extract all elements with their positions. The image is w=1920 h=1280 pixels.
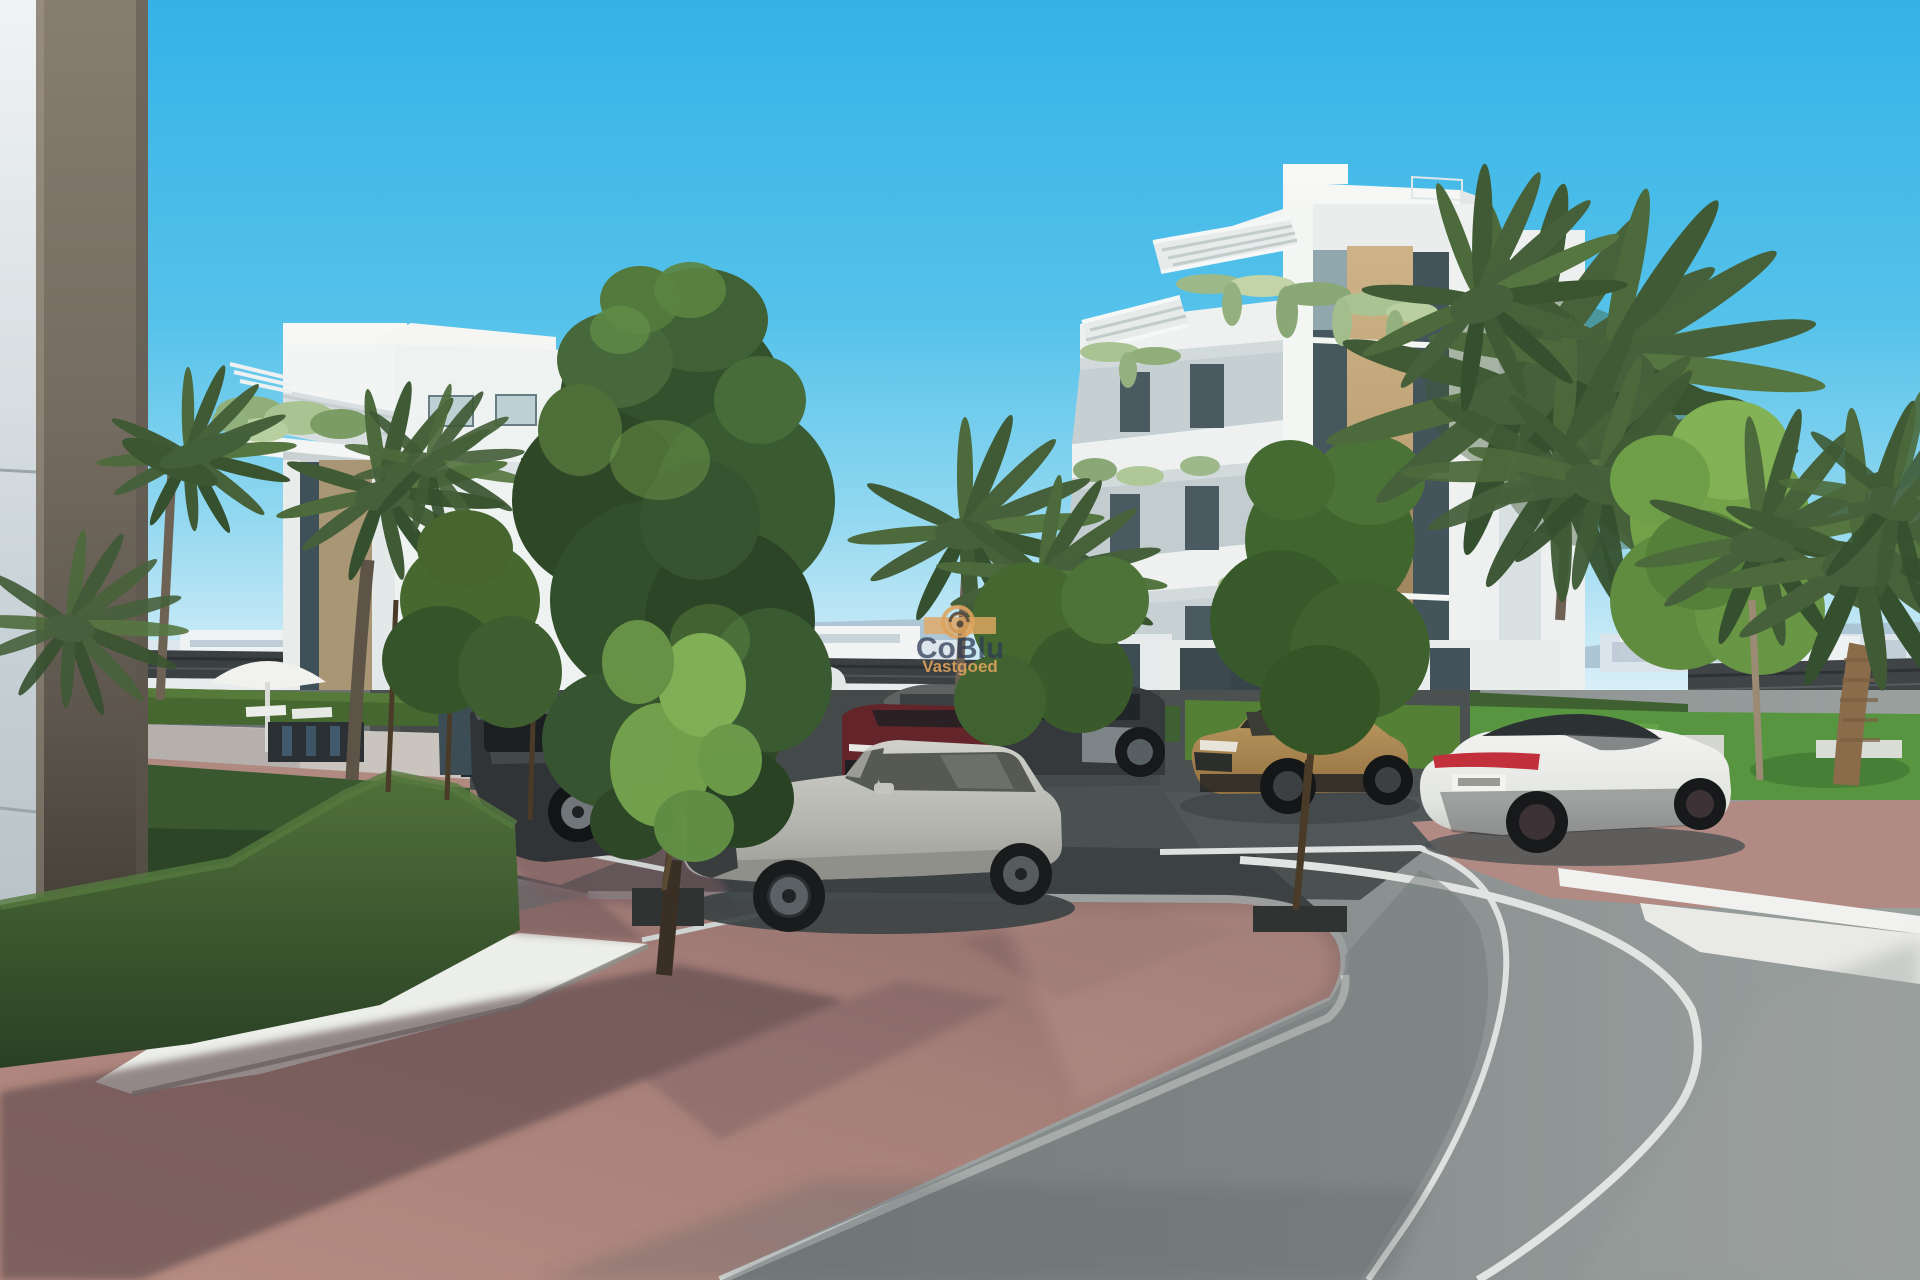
svg-text:Vastgoed: Vastgoed [922,657,998,676]
